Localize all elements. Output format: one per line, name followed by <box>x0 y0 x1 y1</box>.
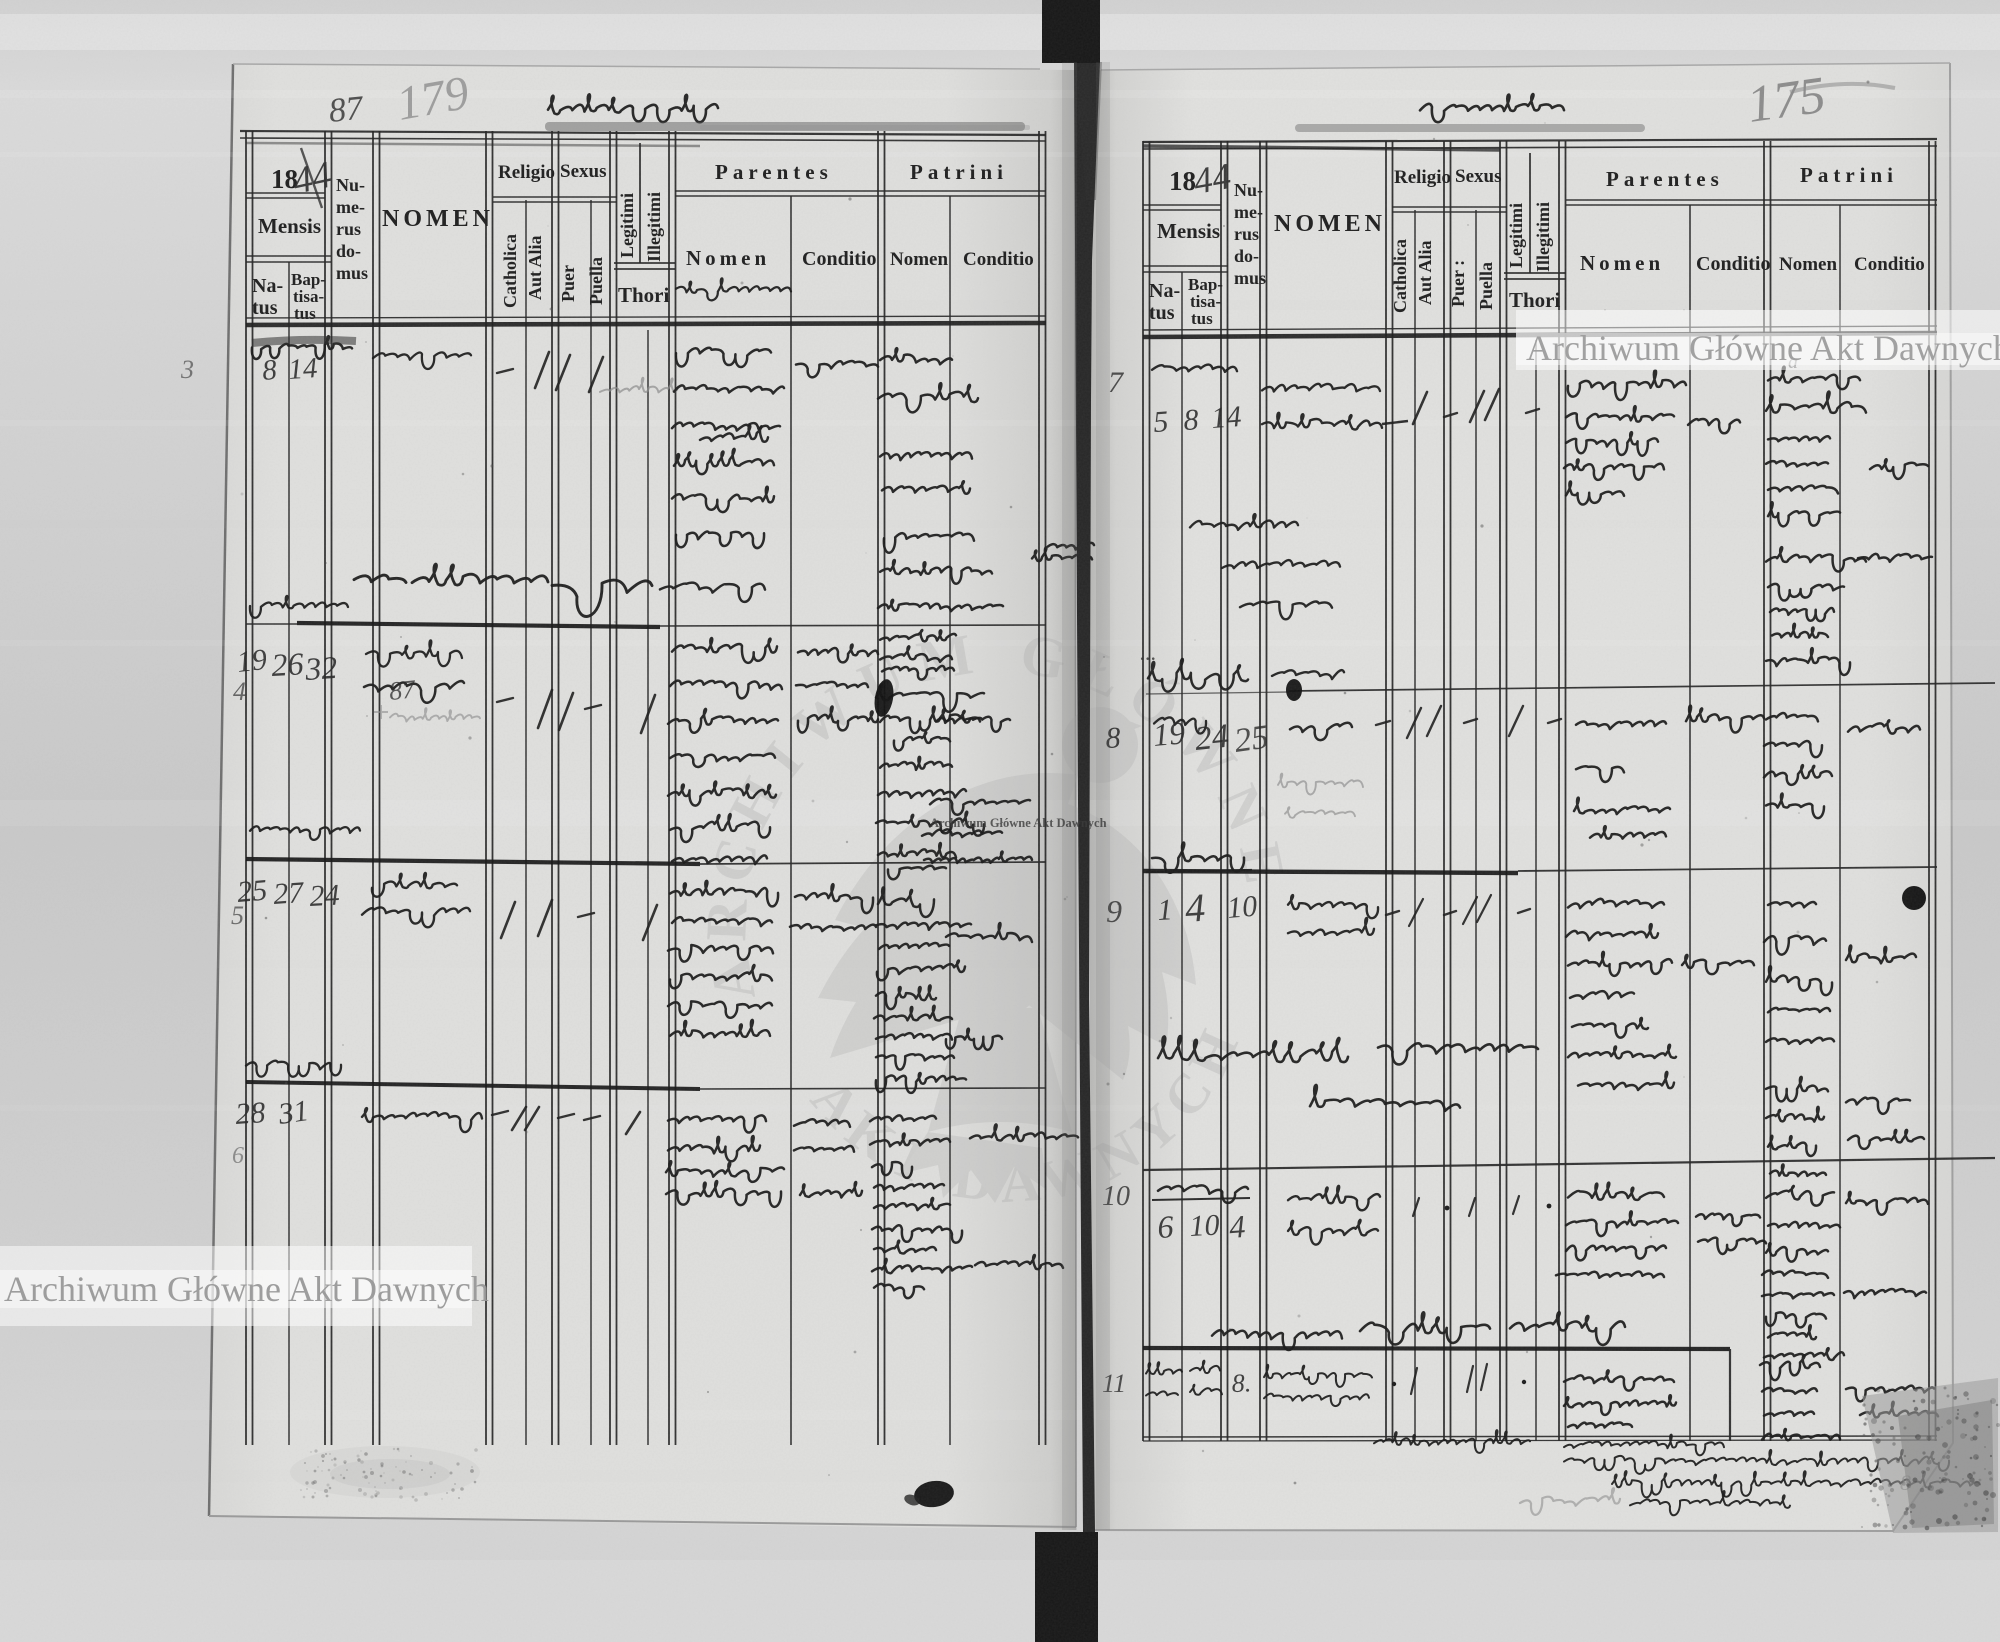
svg-text:Conditio: Conditio <box>963 249 1034 270</box>
svg-text:Na-: Na- <box>252 275 283 297</box>
svg-text:Nomen: Nomen <box>1779 254 1837 275</box>
svg-text:Nomen: Nomen <box>890 249 948 270</box>
svg-text:Religio: Religio <box>498 162 555 183</box>
svg-text:28: 28 <box>234 1096 266 1131</box>
svg-text:do-: do- <box>336 241 361 261</box>
svg-text:Patrini: Patrini <box>910 160 1008 184</box>
svg-text:Catholica: Catholica <box>1390 239 1410 313</box>
svg-text:Nomen: Nomen <box>686 246 770 270</box>
svg-text:NOMEN: NOMEN <box>1274 211 1386 237</box>
svg-text:Nu-: Nu- <box>1234 180 1263 200</box>
svg-text:14: 14 <box>1210 400 1242 435</box>
svg-text:do-: do- <box>1234 246 1259 266</box>
svg-text:Religio: Religio <box>1394 167 1451 188</box>
svg-text:5: 5 <box>1152 405 1169 439</box>
svg-text:Archiwum Główne Akt Dawnych: Archiwum Główne Akt Dawnych <box>930 816 1107 830</box>
svg-text:10: 10 <box>1226 889 1259 924</box>
svg-text:mus: mus <box>336 263 368 283</box>
svg-text:tus: tus <box>1149 302 1175 324</box>
svg-text:10: 10 <box>1189 1208 1221 1243</box>
svg-text:Illegitimi: Illegitimi <box>644 192 664 262</box>
svg-text:Catholica: Catholica <box>500 234 520 308</box>
svg-text:8.: 8. <box>1231 1368 1252 1398</box>
svg-text:Mensis: Mensis <box>1157 219 1220 243</box>
svg-text:rus: rus <box>1234 224 1259 244</box>
svg-text:Legitimi: Legitimi <box>617 193 637 258</box>
svg-text:24: 24 <box>309 878 341 913</box>
svg-text:Sexus: Sexus <box>1455 166 1501 187</box>
svg-text:175: 175 <box>1744 67 1829 134</box>
svg-text:Sexus: Sexus <box>560 161 606 182</box>
svg-text:24: 24 <box>1193 718 1231 758</box>
svg-text:Parentes: Parentes <box>1606 167 1724 191</box>
svg-text:44: 44 <box>1190 156 1234 203</box>
svg-text:4: 4 <box>233 677 246 706</box>
svg-text:mus: mus <box>1234 268 1266 288</box>
svg-text:tus: tus <box>294 304 316 323</box>
svg-text:Patrini: Patrini <box>1800 163 1898 187</box>
svg-text:rus: rus <box>336 219 361 239</box>
svg-text:6: 6 <box>1156 1208 1174 1245</box>
svg-text:tus: tus <box>252 297 278 319</box>
svg-text:Archiwum Główne Akt Dawnych: Archiwum Główne Akt Dawnych <box>1526 328 2000 368</box>
svg-text:Conditio: Conditio <box>1854 254 1925 275</box>
svg-text:Conditio: Conditio <box>1696 253 1770 275</box>
svg-text:14: 14 <box>287 352 318 386</box>
svg-text:87: 87 <box>327 89 367 130</box>
svg-text:Legitimi: Legitimi <box>1506 203 1526 268</box>
svg-text:19: 19 <box>235 643 268 679</box>
svg-text:Puer: Puer <box>558 265 578 302</box>
svg-text:31: 31 <box>275 1094 310 1131</box>
svg-text:Aut Alia: Aut Alia <box>525 235 545 300</box>
svg-text:6: 6 <box>232 1143 244 1169</box>
svg-text:Nu-: Nu- <box>336 175 365 195</box>
svg-text:Conditio: Conditio <box>802 248 876 270</box>
svg-text:7: 7 <box>1108 366 1125 399</box>
svg-text:Illegitimi: Illegitimi <box>1533 202 1553 272</box>
svg-text:Aut Alia: Aut Alia <box>1415 240 1435 305</box>
svg-text:27: 27 <box>272 876 306 911</box>
svg-text:26: 26 <box>270 645 304 683</box>
svg-text:Nomen: Nomen <box>1580 251 1664 275</box>
svg-text:Puer :: Puer : <box>1448 260 1468 307</box>
svg-text:Puella: Puella <box>586 257 606 305</box>
svg-text:tus: tus <box>1191 309 1213 328</box>
svg-text:19: 19 <box>1151 714 1186 753</box>
svg-text:Puella: Puella <box>1476 262 1496 310</box>
svg-text:87: 87 <box>388 674 418 706</box>
svg-text:Mensis: Mensis <box>258 214 321 238</box>
svg-text:Parentes: Parentes <box>715 160 833 184</box>
svg-text:me-: me- <box>336 197 365 217</box>
svg-text:Archiwum Główne Akt Dawnych: Archiwum Główne Akt Dawnych <box>4 1269 489 1309</box>
svg-text:Thori: Thori <box>1509 288 1561 312</box>
svg-text:Thori: Thori <box>618 283 670 307</box>
svg-text:8: 8 <box>1183 403 1200 437</box>
svg-text:1: 1 <box>1157 893 1174 927</box>
svg-text:Na-: Na- <box>1149 280 1180 302</box>
svg-text:25: 25 <box>236 873 269 908</box>
svg-text:me-: me- <box>1234 202 1263 222</box>
svg-text:NOMEN: NOMEN <box>382 206 494 232</box>
svg-text:4: 4 <box>1183 885 1206 931</box>
svg-text:3: 3 <box>180 355 194 384</box>
svg-text:25: 25 <box>1232 719 1271 760</box>
svg-text:4: 4 <box>1228 1208 1246 1245</box>
svg-text:32: 32 <box>303 649 338 687</box>
